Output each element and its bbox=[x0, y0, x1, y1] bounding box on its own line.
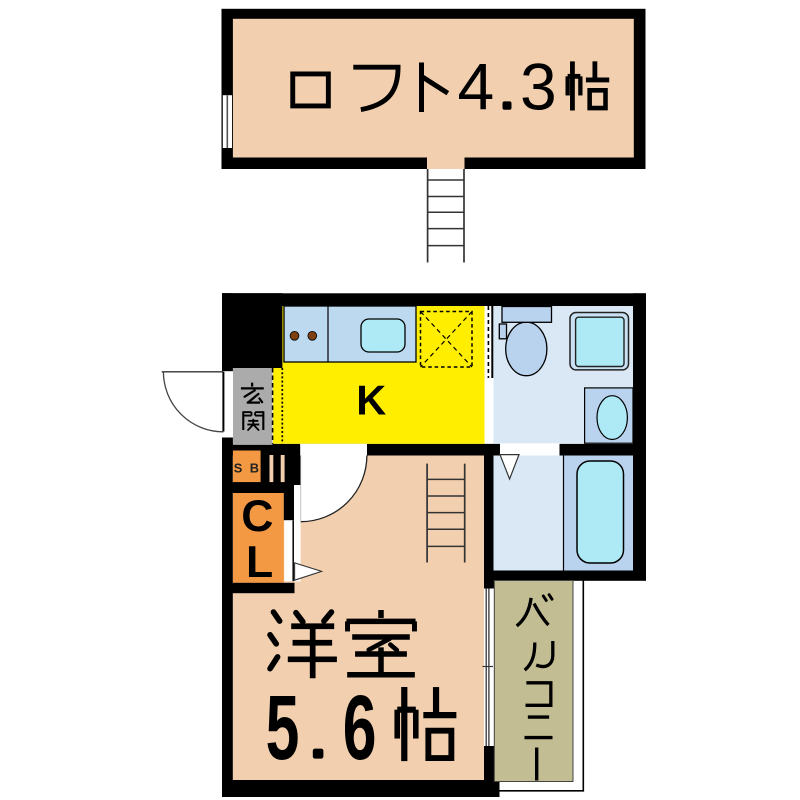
svg-text:K: K bbox=[356, 376, 386, 423]
svg-text:B: B bbox=[250, 460, 259, 475]
svg-text:4: 4 bbox=[458, 50, 495, 124]
svg-text:6: 6 bbox=[343, 675, 377, 779]
svg-text:C: C bbox=[241, 492, 273, 541]
svg-text:L: L bbox=[246, 538, 273, 587]
svg-text:S: S bbox=[234, 460, 243, 475]
svg-text:5: 5 bbox=[266, 675, 300, 779]
svg-text:3: 3 bbox=[520, 50, 557, 124]
